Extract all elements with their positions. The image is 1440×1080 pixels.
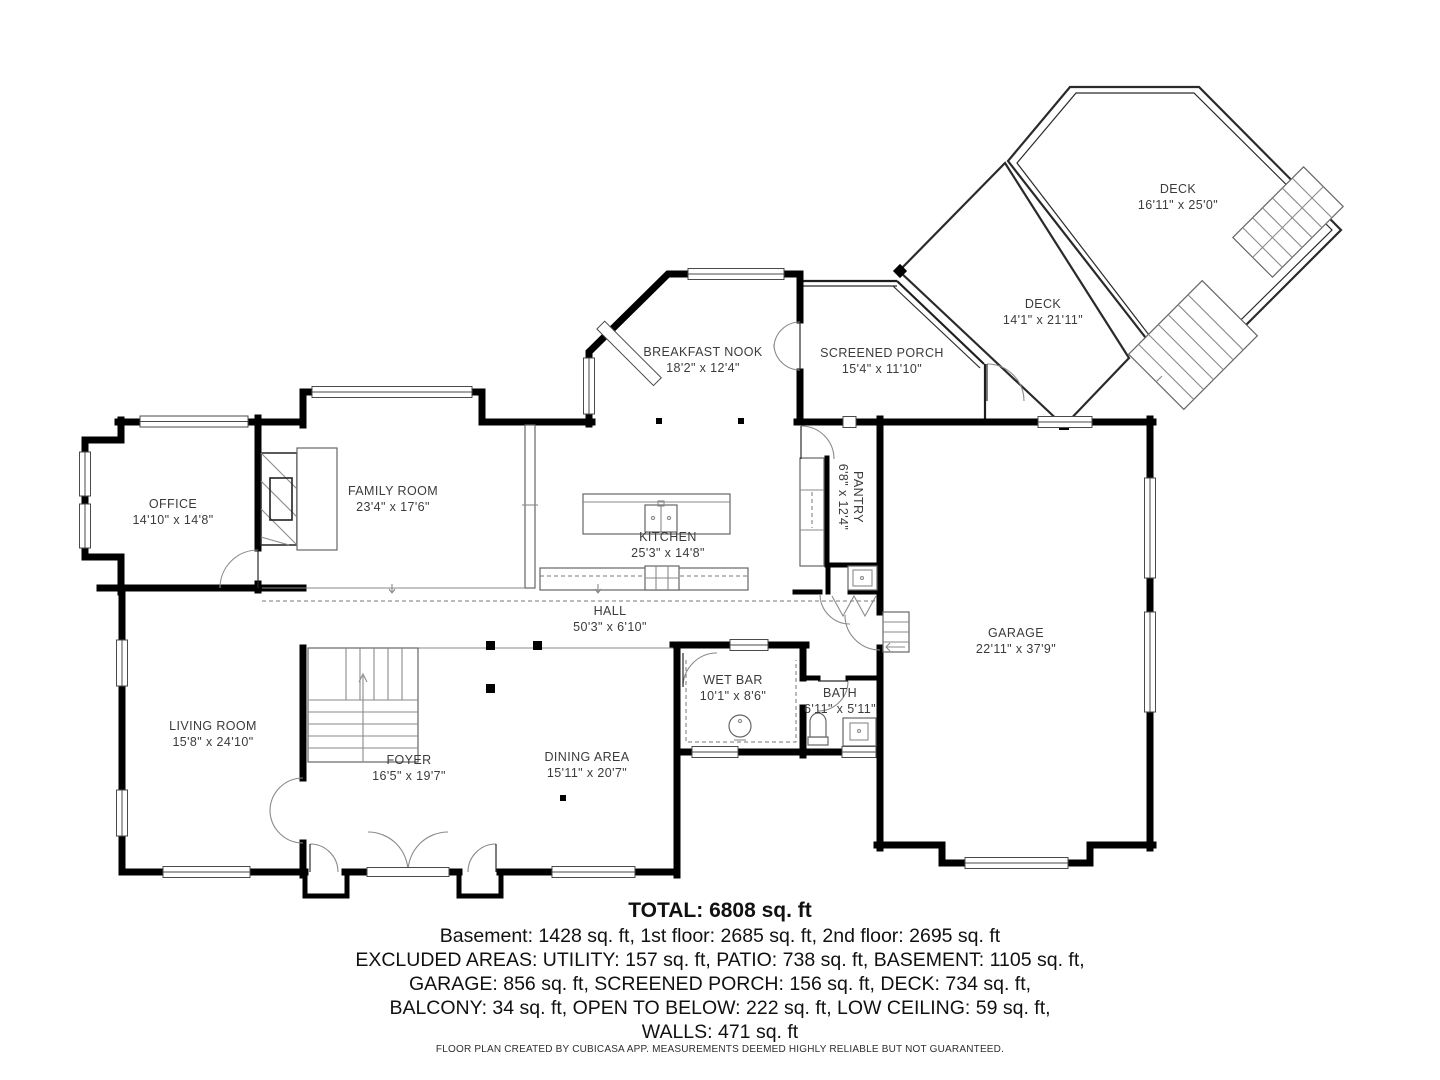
summary-line-floors: Basement: 1428 sq. ft, 1st floor: 2685 s… [0, 924, 1440, 948]
total-area: TOTAL: 6808 sq. ft [0, 898, 1440, 924]
label-hall-dims: 50'3" x 6'10" [573, 620, 647, 634]
label-bath-dims: 6'11" x 5'11" [804, 702, 876, 716]
pantry-door [801, 426, 834, 459]
label-foyer-name: FOYER [386, 753, 431, 767]
label-breakfast-nook-name: BREAKFAST NOOK [643, 345, 763, 359]
kitchen-island [583, 494, 730, 534]
fireplace [261, 448, 337, 550]
label-garage-dims: 22'11" x 37'9" [976, 642, 1056, 656]
label-living-room-dims: 15'8" x 24'10" [172, 735, 253, 749]
bath-fixtures [808, 713, 876, 746]
label-dining-area-name: DINING AREA [545, 750, 630, 764]
label-hall-name: HALL [594, 604, 627, 618]
label-kitchen-dims: 25'3" x 14'8" [631, 546, 705, 560]
label-family-room-dims: 23'4" x 17'6" [356, 500, 430, 514]
summary-line-excluded-3: BALCONY: 34 sq. ft, OPEN TO BELOW: 222 s… [0, 996, 1440, 1020]
summary-line-excluded-2: GARAGE: 856 sq. ft, SCREENED PORCH: 156 … [0, 972, 1440, 996]
label-kitchen-name: KITCHEN [639, 530, 697, 544]
summary-line-excluded-1: EXCLUDED AREAS: UTILITY: 157 sq. ft, PAT… [0, 948, 1440, 972]
foyer-staircase [308, 648, 418, 762]
label-breakfast-nook-dims: 18'2" x 12'4" [666, 361, 740, 375]
label-family-room-name: FAMILY ROOM [348, 484, 438, 498]
label-pantry-dims: 6'8" x 12'4" [836, 464, 850, 530]
label-bath-name: BATH [823, 686, 857, 700]
kitchen-cabinets [800, 458, 824, 566]
kitchen-counter [540, 566, 748, 590]
label-dining-area-dims: 15'11" x 20'7" [547, 766, 627, 780]
floor-plan-page: DECK 16'11" x 25'0" DECK 14'1" x 21'11" … [0, 0, 1440, 1080]
mud-area [820, 566, 909, 652]
label-deck-upper-dims: 16'11" x 25'0" [1138, 198, 1218, 212]
label-garage-name: GARAGE [988, 626, 1044, 640]
label-wet-bar-name: WET BAR [703, 673, 763, 687]
label-deck-lower-dims: 14'1" x 21'11" [1003, 313, 1083, 327]
summary-line-walls: WALLS: 471 sq. ft [0, 1020, 1440, 1044]
label-foyer-dims: 16'5" x 19'7" [372, 769, 446, 783]
label-wet-bar-dims: 10'1" x 8'6" [700, 689, 766, 703]
doors [220, 322, 848, 877]
label-screened-porch-dims: 15'4" x 11'10" [842, 362, 922, 376]
label-office-dims: 14'10" x 14'8" [132, 513, 213, 527]
disclaimer-text: FLOOR PLAN CREATED BY CUBICASA APP. MEAS… [0, 1044, 1440, 1055]
label-deck-upper-name: DECK [1160, 182, 1197, 196]
label-living-room-name: LIVING ROOM [169, 719, 257, 733]
label-deck-lower-name: DECK [1025, 297, 1062, 311]
area-summary: TOTAL: 6808 sq. ft Basement: 1428 sq. ft… [0, 898, 1440, 1044]
label-office-name: OFFICE [149, 497, 197, 511]
label-pantry-name: PANTRY [851, 471, 865, 523]
label-screened-porch-name: SCREENED PORCH [820, 346, 944, 360]
